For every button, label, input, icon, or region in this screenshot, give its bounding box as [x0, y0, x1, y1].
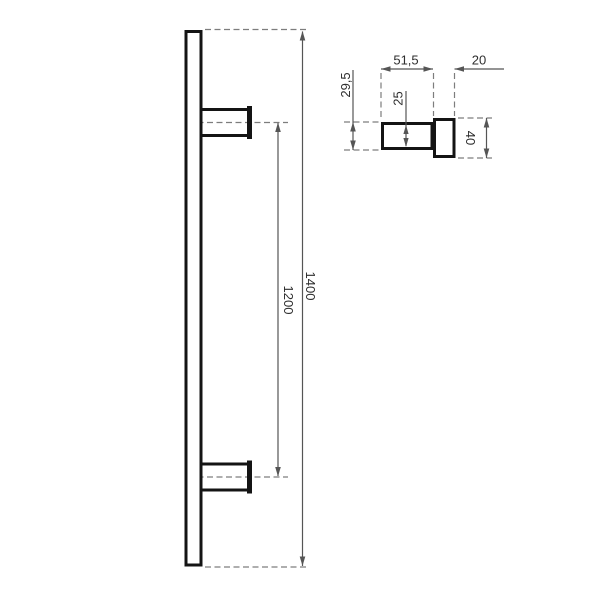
front-view: 1200 1400 — [186, 30, 318, 568]
dimension-label-1200: 1200 — [281, 286, 296, 315]
arrowhead-down-icon — [350, 141, 356, 151]
arrowhead-up-icon — [484, 118, 490, 128]
dimension-label-20: 20 — [472, 53, 486, 68]
dimension-label-40: 40 — [463, 131, 478, 145]
dimension-mounting-centers: 1200 — [275, 123, 296, 477]
arrowhead-down-icon — [300, 557, 306, 567]
post-section — [383, 124, 433, 149]
arrowhead-down-icon — [275, 467, 281, 477]
arrowhead-right-icon — [424, 66, 434, 72]
side-view: 51,5 20 29,5 25 — [338, 53, 504, 159]
dimension-post-outer-height: 29,5 — [338, 70, 356, 150]
pull-handle-drawing: 1200 1400 — [0, 0, 600, 600]
dimension-bar-depth: 20 — [455, 53, 505, 72]
arrowhead-up-icon — [350, 122, 356, 132]
dimension-post-length: 51,5 — [381, 53, 433, 72]
technical-drawing-page: 1200 1400 — [0, 0, 600, 600]
arrowhead-up-icon — [275, 123, 281, 133]
bar-section — [435, 120, 455, 157]
arrowhead-left-icon — [455, 66, 465, 72]
arrowhead-down-icon — [484, 149, 490, 159]
dimension-bar-height: 40 — [463, 118, 489, 158]
dimension-label-1400: 1400 — [303, 272, 318, 301]
handle-bar — [186, 32, 201, 566]
dimension-label-51-5: 51,5 — [393, 53, 418, 68]
arrowhead-left-icon — [381, 66, 391, 72]
dimension-label-25: 25 — [391, 91, 406, 105]
dimension-label-29-5: 29,5 — [338, 72, 353, 97]
arrowhead-up-icon — [300, 31, 306, 41]
dimension-overall-length: 1400 — [300, 31, 318, 566]
